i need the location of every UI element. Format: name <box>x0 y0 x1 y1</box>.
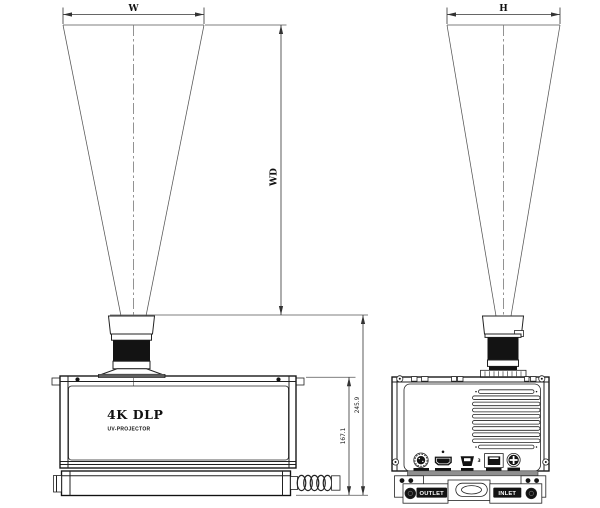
lens-focus-ring-side <box>488 337 519 360</box>
coil-cable-connector <box>332 476 341 490</box>
brand-text: 4K DLP <box>107 407 164 422</box>
w-dimension: W <box>63 4 204 24</box>
usb-port <box>461 456 474 471</box>
base-rail-bar <box>62 471 291 496</box>
lens-flange-front <box>102 369 163 375</box>
h-dimension: H <box>447 4 560 24</box>
body-front: 4K DLP UV-PROJECTOR <box>52 376 304 468</box>
mount-tab-left <box>52 378 60 385</box>
base-rail <box>54 471 298 496</box>
db-connector-outline <box>456 483 488 496</box>
body-side: 3 <box>392 376 549 504</box>
dim-label-wd: WD <box>270 168 280 187</box>
outlet-label: OUTLET <box>420 491 445 497</box>
lens-focus-ring-front <box>113 340 150 361</box>
lens-ring-front <box>112 334 152 340</box>
usb3-marking: 3 <box>478 458 481 464</box>
projector-dimension-drawing: W H WD 245.9 167.1 <box>0 0 600 508</box>
mount-tab-right <box>296 378 304 385</box>
technical-drawing-canvas: W H WD 245.9 167.1 <box>0 0 600 508</box>
lens-hood-front <box>109 316 155 334</box>
db-connector-assembly <box>448 480 490 501</box>
wd-dimension: WD <box>110 25 368 315</box>
screw-terminal-port <box>507 453 520 471</box>
lens-collar-side <box>488 360 519 366</box>
dim-value-overall-height: 245.9 <box>355 396 361 413</box>
hdmi-port <box>435 457 452 472</box>
screw-front-right-icon <box>276 377 280 381</box>
connector-bar <box>408 471 539 476</box>
inlet-assembly: INLET <box>490 484 542 503</box>
front-panel <box>69 386 289 460</box>
dim-label-h: H <box>499 4 508 14</box>
model-text: UV-PROJECTOR <box>108 427 151 433</box>
dim-label-w: W <box>127 4 139 14</box>
lens-side <box>481 316 527 377</box>
cable-gland <box>291 477 298 490</box>
side-view: 3 <box>392 316 549 503</box>
coil-cable <box>297 475 340 490</box>
lens-pedestal <box>481 370 527 377</box>
inlet-label: INLET <box>498 491 516 497</box>
ethernet-port <box>485 454 504 472</box>
front-view: 4K DLP UV-PROJECTOR <box>52 316 340 496</box>
dim-value-body-height: 167.1 <box>341 427 347 444</box>
screw-front-left-icon <box>75 377 79 381</box>
power-din-port <box>414 453 430 472</box>
outlet-assembly: OUTLET <box>403 484 448 503</box>
outlet-plug-icon <box>405 488 416 499</box>
inlet-plug-icon <box>526 488 537 499</box>
lens-ring-side <box>485 334 521 337</box>
led-indicator-icon <box>442 451 445 454</box>
rail-end-clip-left <box>54 476 62 493</box>
lens-collar-front <box>113 361 150 369</box>
lens-front <box>99 316 166 378</box>
overall-height-dimension: 245.9 <box>296 315 368 495</box>
